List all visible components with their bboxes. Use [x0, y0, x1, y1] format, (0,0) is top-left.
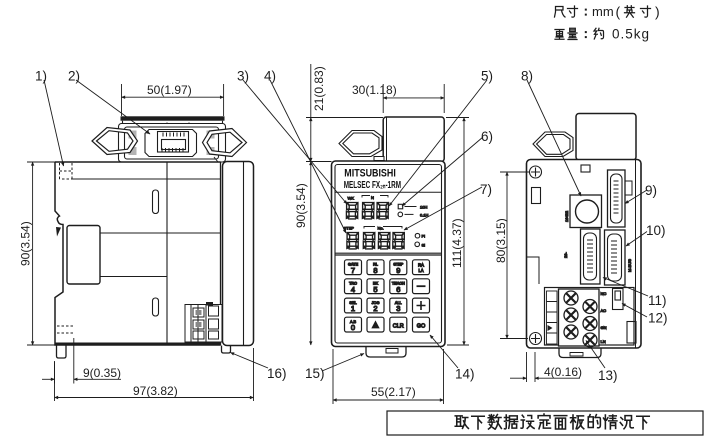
- svg-text:No.: No.: [378, 226, 384, 231]
- svg-text:55(2.17): 55(2.17): [371, 385, 416, 399]
- svg-text:97(3.82): 97(3.82): [133, 384, 178, 398]
- svg-text:MELSEC FX₂ₙ-1RM: MELSEC FX₂ₙ-1RM: [344, 180, 401, 191]
- svg-text:NC: NC: [601, 291, 607, 296]
- svg-text:9(0.35): 9(0.35): [83, 366, 121, 380]
- svg-text:7): 7): [480, 182, 492, 197]
- svg-text:1: 1: [351, 304, 355, 313]
- svg-text:10): 10): [646, 223, 666, 238]
- svg-text:STEP: STEP: [344, 226, 355, 231]
- svg-text:16): 16): [267, 366, 287, 381]
- svg-text:7: 7: [351, 266, 355, 275]
- svg-text:5: 5: [373, 285, 377, 294]
- svg-text:4): 4): [264, 69, 276, 84]
- svg-text:MITSUBISHI: MITSUBISHI: [344, 168, 396, 180]
- svg-text:12): 12): [648, 311, 668, 326]
- svg-text:8): 8): [521, 69, 533, 84]
- svg-text:80(3.15): 80(3.15): [494, 218, 508, 263]
- svg-text:90(3.54): 90(3.54): [19, 221, 33, 266]
- svg-text:0.1H: 0.1H: [420, 212, 429, 217]
- svg-text:20-: 20-: [563, 252, 568, 258]
- svg-text:9: 9: [396, 266, 400, 275]
- svg-text:13): 13): [598, 368, 618, 383]
- svg-text:10H: 10H: [420, 205, 427, 210]
- svg-text:111(4.37): 111(4.37): [450, 218, 464, 268]
- svg-text:3): 3): [237, 69, 249, 84]
- svg-text:15): 15): [305, 366, 325, 381]
- svg-text:M-BUS: M-BUS: [627, 259, 632, 272]
- svg-text:(: (: [616, 4, 621, 20]
- svg-text:AC: AC: [601, 308, 607, 313]
- svg-text:50(1.97): 50(1.97): [147, 83, 192, 97]
- svg-text:11): 11): [648, 293, 667, 308]
- svg-text:0: 0: [351, 323, 355, 332]
- svg-text:GN: GN: [601, 325, 607, 330]
- svg-text:RA: RA: [418, 262, 424, 267]
- svg-text:N: N: [371, 195, 374, 200]
- svg-text:8: 8: [373, 266, 377, 275]
- svg-text:6: 6: [396, 285, 400, 294]
- svg-text:4: 4: [351, 285, 355, 294]
- svg-text:1): 1): [35, 69, 47, 84]
- svg-text:5): 5): [481, 69, 493, 84]
- svg-text:3: 3: [396, 304, 400, 313]
- svg-text:Si: Si: [422, 242, 426, 247]
- svg-text:CLR: CLR: [393, 324, 404, 330]
- svg-text:16422: 16422: [564, 210, 569, 222]
- svg-text:14): 14): [455, 367, 475, 382]
- svg-text:WK: WK: [348, 196, 355, 201]
- svg-text:mm: mm: [592, 4, 614, 19]
- svg-text:90(3.54): 90(3.54): [294, 183, 308, 228]
- svg-text:9): 9): [645, 183, 657, 198]
- svg-text:4(0.16): 4(0.16): [544, 365, 582, 379]
- svg-text:21(0.83): 21(0.83): [312, 66, 326, 111]
- svg-text:Pi: Pi: [422, 234, 426, 239]
- svg-text:): ): [655, 4, 660, 20]
- svg-text:GO: GO: [417, 324, 426, 330]
- svg-text:2): 2): [68, 69, 80, 84]
- svg-text:0.5kg: 0.5kg: [612, 27, 650, 42]
- svg-text:6): 6): [481, 129, 493, 144]
- svg-text:LN: LN: [601, 339, 606, 344]
- svg-text:LA: LA: [418, 268, 423, 273]
- svg-text:2: 2: [373, 304, 377, 313]
- svg-text:30(1.18): 30(1.18): [352, 83, 397, 97]
